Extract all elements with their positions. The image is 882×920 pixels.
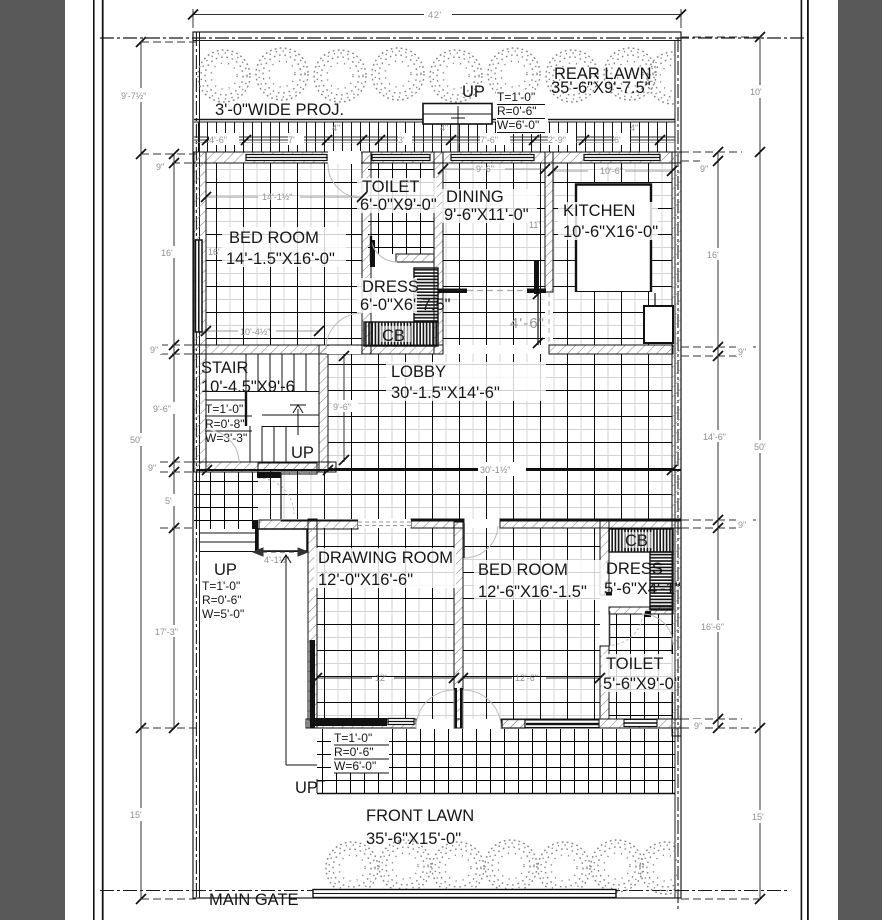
- svg-text:DRAWING ROOM: DRAWING ROOM: [318, 549, 453, 567]
- svg-text:7'-6": 7'-6": [480, 135, 498, 145]
- svg-text:30'-1½": 30'-1½": [480, 465, 510, 475]
- svg-text:35'-6"X9'-7.5": 35'-6"X9'-7.5": [551, 79, 651, 97]
- svg-text:12'-6"X16'-1.5": 12'-6"X16'-1.5": [478, 583, 587, 601]
- svg-text:6': 6': [614, 135, 621, 145]
- svg-text:10'-4½": 10'-4½": [240, 327, 270, 337]
- svg-text:9": 9": [738, 347, 746, 357]
- svg-text:12'-0"X16'-6": 12'-0"X16'-6": [318, 571, 413, 589]
- svg-text:9": 9": [694, 721, 702, 731]
- svg-text:10'-4.5"X9'-6: 10'-4.5"X9'-6: [201, 378, 295, 396]
- svg-text:W=6'-0": W=6'-0": [334, 759, 376, 773]
- svg-text:10': 10': [750, 87, 762, 97]
- svg-text:50': 50': [754, 442, 766, 452]
- svg-text:DINING: DINING: [446, 188, 504, 206]
- svg-text:42': 42': [428, 10, 442, 21]
- svg-text:CB: CB: [382, 327, 405, 345]
- svg-text:DRESS: DRESS: [606, 560, 663, 578]
- svg-text:4": 4": [332, 123, 340, 133]
- svg-text:5'-6"X4'-1": 5'-6"X4'-1": [604, 580, 681, 598]
- svg-text:5'-6"X9'-0": 5'-6"X9'-0": [603, 675, 680, 693]
- svg-text:10'-6"X16'-0": 10'-6"X16'-0": [563, 223, 658, 241]
- svg-text:DRESS: DRESS: [362, 278, 419, 296]
- svg-text:2'-9": 2'-9": [548, 135, 566, 145]
- svg-text:4": 4": [630, 123, 638, 133]
- svg-text:7': 7': [288, 135, 295, 145]
- svg-text:9'-6"X11'-0": 9'-6"X11'-0": [444, 206, 529, 224]
- svg-text:R=0'-6": R=0'-6": [497, 104, 537, 118]
- svg-text:UP: UP: [214, 561, 237, 579]
- svg-text:R=0'-6": R=0'-6": [334, 745, 374, 759]
- svg-text:4": 4": [440, 123, 448, 133]
- svg-text:6'-0"X9'-0": 6'-0"X9'-0": [360, 196, 437, 214]
- svg-text:FRONT LAWN: FRONT LAWN: [366, 807, 474, 825]
- svg-text:9": 9": [738, 520, 746, 530]
- svg-text:T=1'-0": T=1'-0": [334, 731, 372, 745]
- svg-text:11': 11': [529, 220, 540, 230]
- svg-text:14'-6": 14'-6": [703, 432, 726, 442]
- svg-text:T=1'-0": T=1'-0": [497, 90, 535, 104]
- svg-text:UP: UP: [295, 779, 318, 797]
- svg-text:9": 9": [700, 164, 708, 174]
- svg-text:50': 50': [130, 435, 142, 445]
- svg-text:4'-6": 4'-6": [209, 135, 227, 145]
- svg-text:10'-6": 10'-6": [600, 166, 623, 176]
- svg-text:R=0'-8": R=0'-8": [205, 417, 245, 431]
- svg-text:14'-1.5"X16'-0": 14'-1.5"X16'-0": [226, 250, 335, 268]
- svg-text:KITCHEN: KITCHEN: [563, 202, 635, 220]
- svg-text:W=6'-0": W=6'-0": [497, 118, 539, 132]
- svg-text:TOILET: TOILET: [362, 178, 419, 196]
- svg-text:3'-0"WIDE PROJ.: 3'-0"WIDE PROJ.: [215, 101, 344, 119]
- svg-text:9": 9": [150, 345, 158, 355]
- svg-text:6'-0"X6'-7.5": 6'-0"X6'-7.5": [360, 296, 451, 314]
- svg-text:W=5'-0": W=5'-0": [202, 607, 244, 621]
- svg-text:16': 16': [161, 248, 173, 258]
- svg-text:W=3'-3": W=3'-3": [205, 431, 247, 445]
- svg-text:5': 5': [165, 496, 172, 506]
- svg-text:12'-6": 12'-6": [515, 673, 538, 683]
- svg-text:UP: UP: [291, 444, 314, 462]
- svg-text:30'-1.5"X14'-6": 30'-1.5"X14'-6": [391, 384, 500, 402]
- svg-text:9": 9": [148, 463, 156, 473]
- svg-text:STAIR: STAIR: [201, 359, 248, 377]
- svg-text:14'-1½": 14'-1½": [262, 192, 292, 202]
- svg-text:9'-7½": 9'-7½": [121, 91, 146, 101]
- svg-text:16'-6": 16'-6": [701, 622, 724, 632]
- svg-text:9'-6": 9'-6": [333, 402, 351, 412]
- svg-text:CB: CB: [625, 532, 648, 550]
- svg-text:R=0'-6": R=0'-6": [202, 593, 242, 607]
- svg-text:3': 3': [398, 135, 405, 145]
- svg-text:17'-3": 17'-3": [155, 627, 178, 637]
- svg-text:12': 12': [375, 673, 387, 683]
- svg-text:9'-6": 9'-6": [153, 404, 171, 414]
- svg-text:9'-6": 9'-6": [476, 164, 494, 174]
- svg-text:15': 15': [130, 810, 142, 820]
- svg-text:BED ROOM: BED ROOM: [229, 229, 319, 247]
- svg-text:LOBBY: LOBBY: [391, 363, 446, 381]
- svg-text:BED ROOM: BED ROOM: [478, 561, 568, 579]
- svg-text:T=1'-0": T=1'-0": [205, 402, 243, 416]
- svg-text:T=1'-0": T=1'-0": [202, 579, 240, 593]
- svg-text:9": 9": [156, 162, 164, 172]
- svg-text:MAIN GATE: MAIN GATE: [209, 891, 299, 909]
- svg-text:15': 15': [752, 812, 764, 822]
- svg-text:16': 16': [707, 250, 719, 260]
- svg-text:UP: UP: [462, 83, 485, 101]
- svg-text:TOILET: TOILET: [606, 655, 663, 673]
- svg-text:4'-6": 4'-6": [510, 315, 545, 332]
- svg-text:16': 16': [208, 247, 220, 257]
